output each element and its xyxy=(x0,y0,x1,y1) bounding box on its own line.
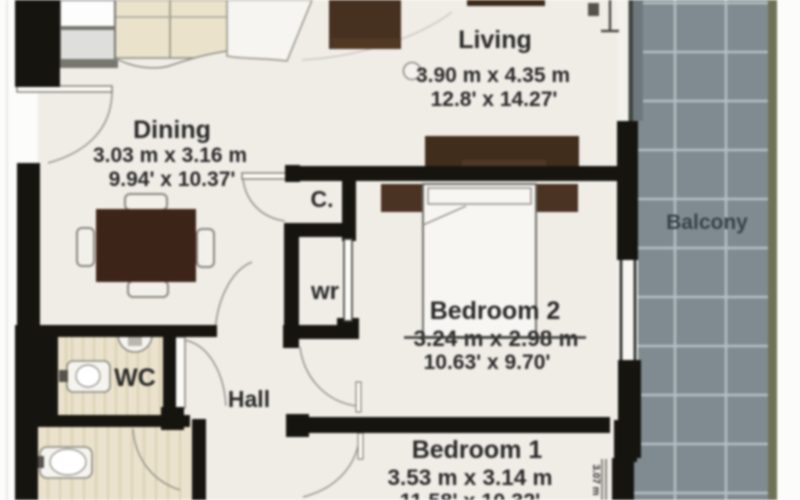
svg-text:11.58' x 10.32': 11.58' x 10.32' xyxy=(400,489,541,500)
svg-text:3.07 m: 3.07 m xyxy=(590,464,601,495)
svg-text:12.8' x 14.27': 12.8' x 14.27' xyxy=(431,88,558,111)
svg-text:WC: WC xyxy=(114,364,156,392)
svg-text:Bedroom 2: Bedroom 2 xyxy=(430,297,561,325)
svg-text:Dining: Dining xyxy=(133,116,211,144)
svg-text:3.03 m x 3.16 m: 3.03 m x 3.16 m xyxy=(93,144,247,167)
svg-text:wr: wr xyxy=(310,278,339,305)
svg-text:Balcony: Balcony xyxy=(666,211,748,234)
svg-text:Living: Living xyxy=(458,26,532,54)
svg-text:10.63' x 9.70': 10.63' x 9.70' xyxy=(424,351,551,374)
svg-text:Hall: Hall xyxy=(228,386,270,412)
svg-text:3.90 m x 4.35 m: 3.90 m x 4.35 m xyxy=(416,64,570,87)
svg-text:C.: C. xyxy=(311,186,334,212)
svg-text:Bedroom 1: Bedroom 1 xyxy=(412,436,543,464)
svg-text:3.53 m x 3.14 m: 3.53 m x 3.14 m xyxy=(387,465,552,490)
svg-text:9.94' x 10.37': 9.94' x 10.37' xyxy=(109,168,236,191)
